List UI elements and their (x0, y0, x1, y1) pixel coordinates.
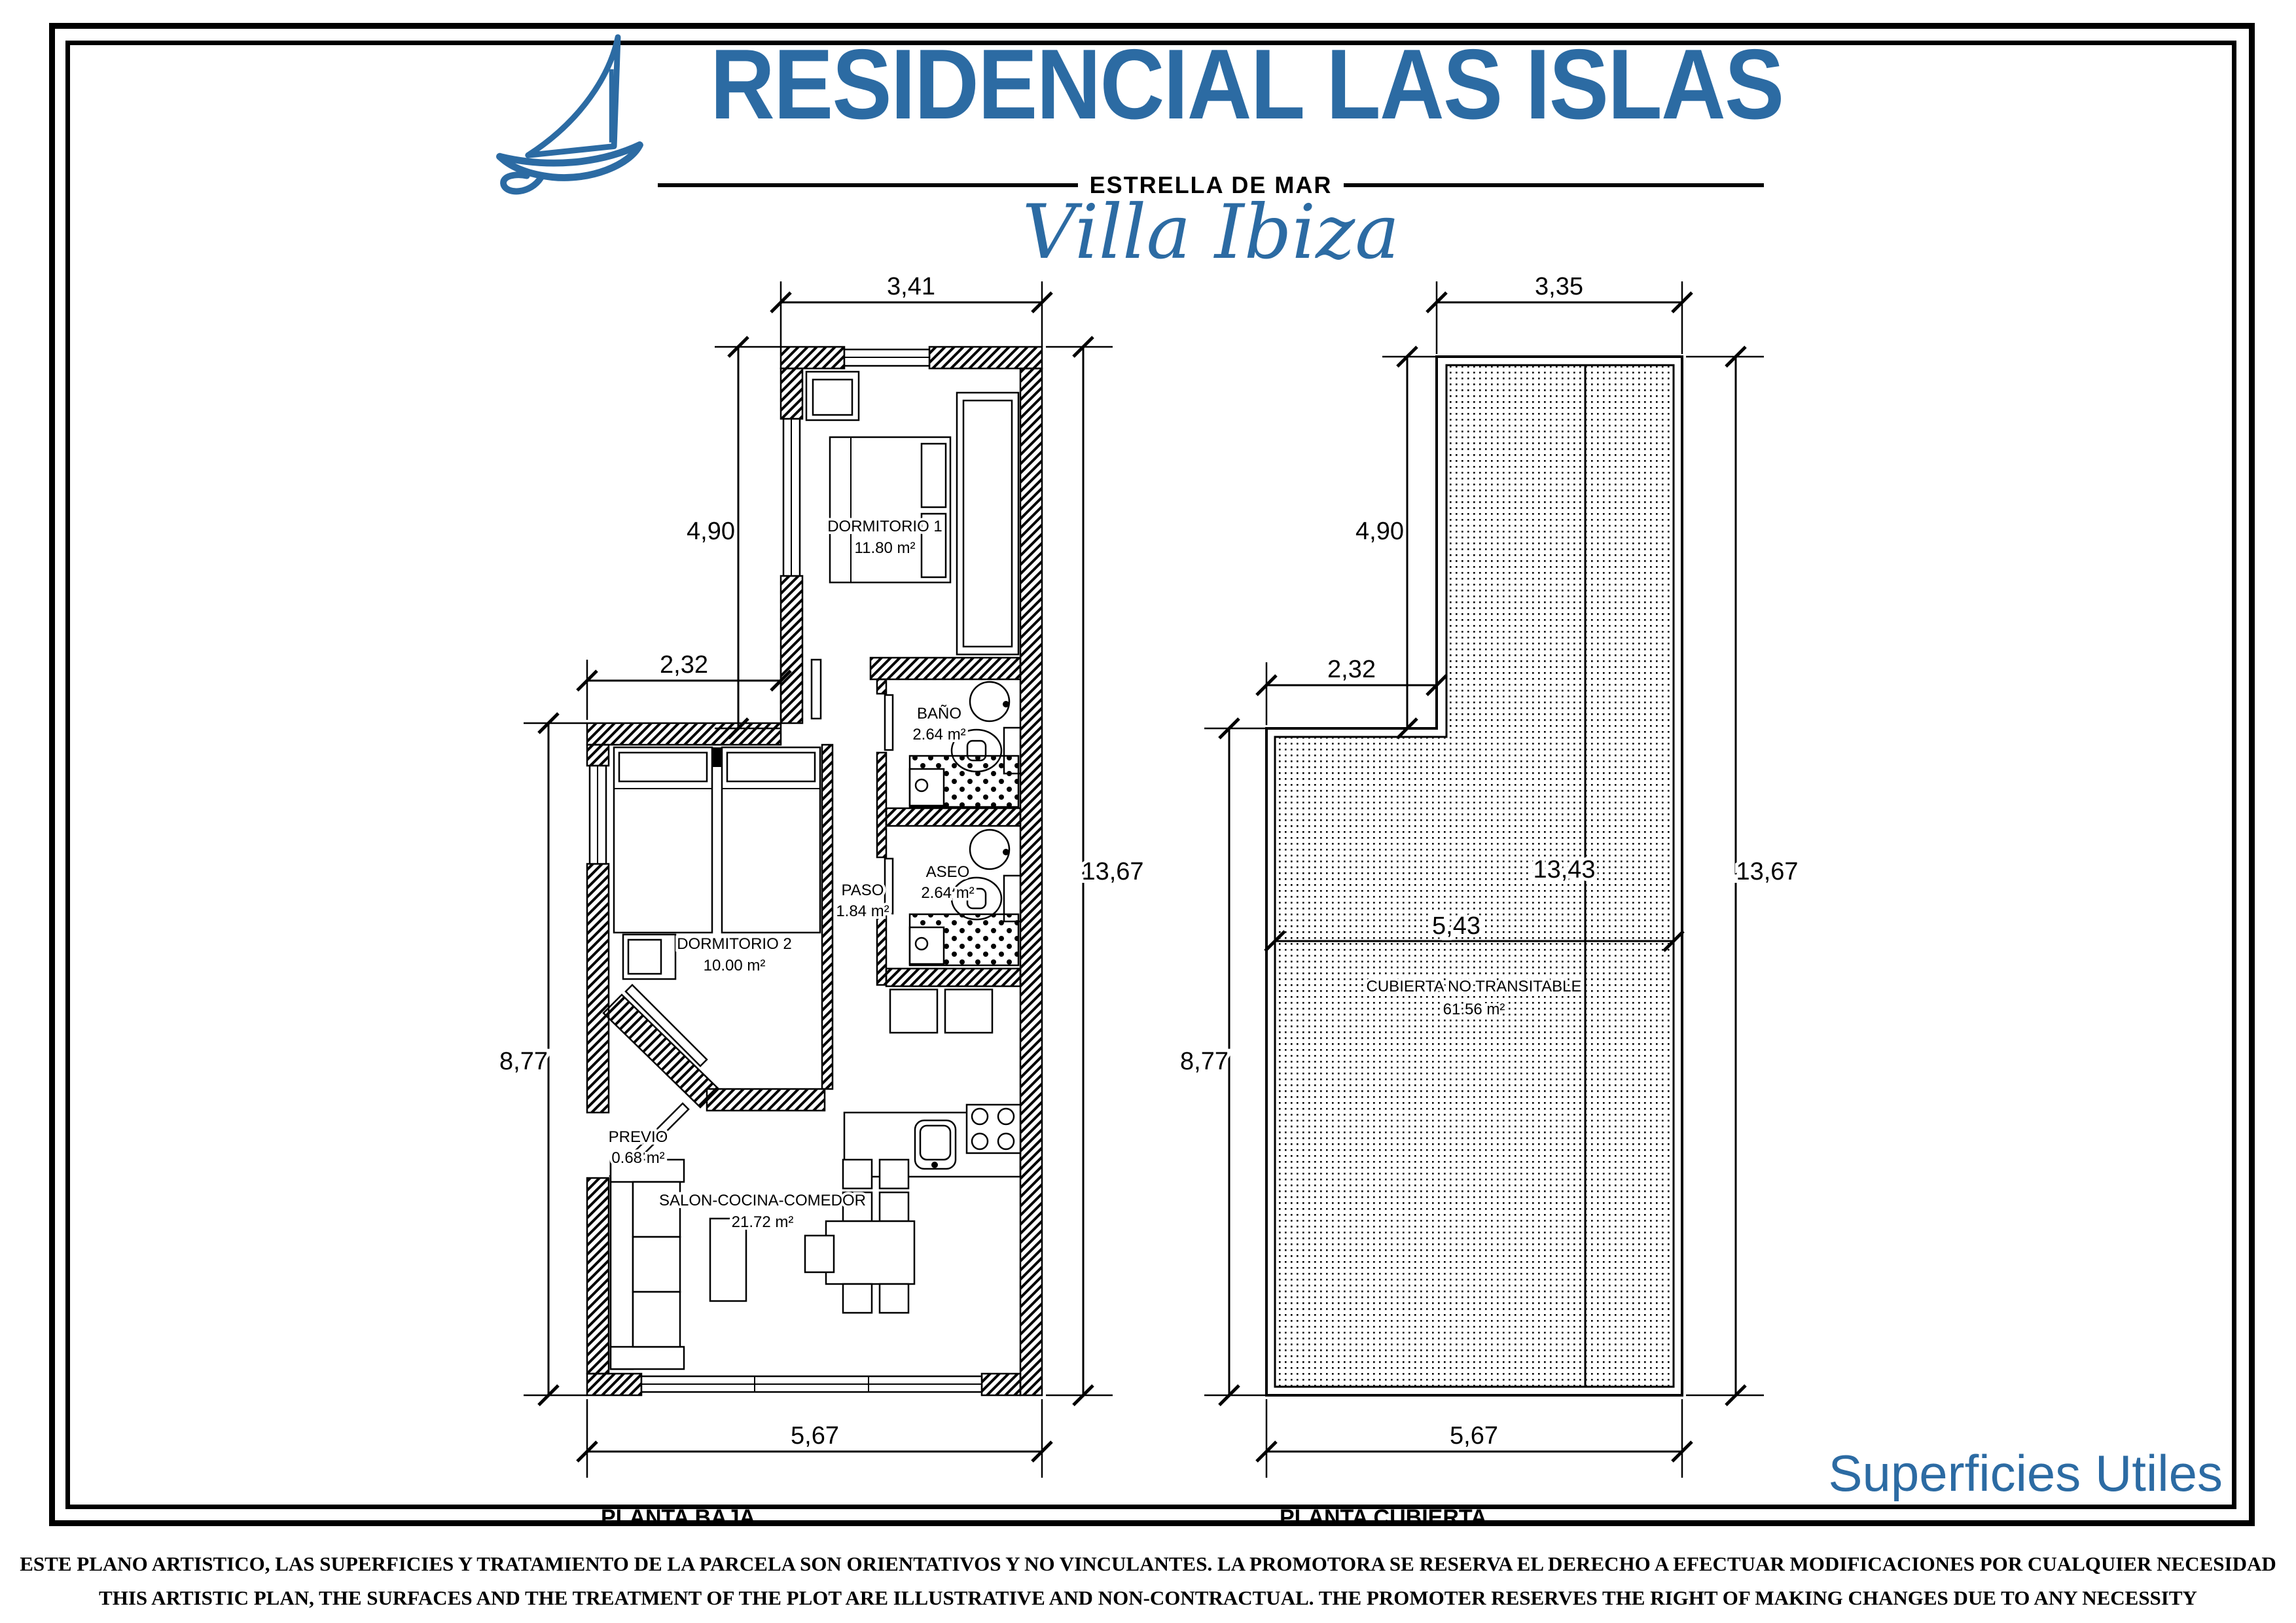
room-label: PREVIO (609, 1128, 668, 1146)
room-label: DORMITORIO 2 (677, 935, 792, 953)
svg-text:2,32: 2,32 (660, 651, 708, 679)
room-area: 1.84 m² (836, 902, 889, 920)
room-area: 61.56 m² (1443, 1001, 1505, 1018)
svg-text:5,67: 5,67 (1450, 1422, 1498, 1450)
dim-lower-left: 8,77 (499, 713, 587, 1405)
dim-mid-left: 2,32 (577, 651, 791, 720)
planta-baja-plan: DORMITORIO 1 11.80 m² BAÑO 2.64 m² ASEO … (499, 273, 1144, 1530)
disclaimer-english: THIS ARTISTIC PLAN, THE SURFACES AND THE… (0, 1586, 2296, 1610)
room-area: 2.64 m² (912, 726, 965, 743)
door-leaf-bano (885, 695, 893, 750)
roof-surface (1275, 365, 1674, 1387)
aseo-fixtures (890, 830, 1020, 1033)
svg-text:3,41: 3,41 (887, 273, 935, 300)
room-label: ASEO (926, 863, 970, 881)
svg-text:8,77: 8,77 (1180, 1048, 1229, 1075)
dim-top: 3,41 (771, 273, 1052, 347)
planta-baja-title: PLANTA BAJA (601, 1505, 755, 1530)
svg-text:4,90: 4,90 (1355, 518, 1404, 545)
room-label: BAÑO (917, 705, 961, 722)
room-label: DORMITORIO 1 (827, 518, 942, 535)
room-area: 11.80 m² (855, 539, 916, 557)
dim-right: 13,67 (1046, 337, 1144, 1405)
svg-text:4,90: 4,90 (687, 518, 735, 545)
svg-text:13,67: 13,67 (1736, 858, 1798, 885)
svg-text:5,43: 5,43 (1432, 912, 1480, 940)
room-label: PASO (842, 882, 884, 899)
room-label: CUBIERTA NO TRANSITABLE (1367, 978, 1582, 995)
svg-text:8,77: 8,77 (499, 1048, 548, 1075)
planta-cubierta-title: PLANTA CUBIERTA (1280, 1505, 1487, 1530)
dim-top: 3,35 (1427, 273, 1692, 354)
svg-text:5,67: 5,67 (791, 1422, 839, 1450)
svg-text:13,67: 13,67 (1081, 858, 1143, 885)
svg-text:3,35: 3,35 (1535, 273, 1583, 300)
bano-fixtures (910, 682, 1020, 807)
floor-plans-drawing: DORMITORIO 1 11.80 m² BAÑO 2.64 m² ASEO … (0, 0, 2296, 1623)
room-label: SALON-COCINA-COMEDOR (659, 1192, 866, 1209)
room-area: 2.64 m² (921, 884, 974, 902)
plan-poster-page: RESIDENCIAL LAS ISLAS ESTRELLA DE MAR Vi… (0, 0, 2296, 1623)
room-area: 21.72 m² (732, 1213, 794, 1231)
svg-text:2,32: 2,32 (1327, 656, 1376, 683)
dim-bottom: 5,67 (577, 1399, 1052, 1478)
dim-roof-ridge-label: 13,43 (1533, 856, 1595, 883)
salon-furniture (611, 1105, 1020, 1369)
dining-table (826, 1221, 914, 1284)
dim-right: 13,67 (1686, 347, 1799, 1405)
room-area: 0.68 m² (611, 1149, 664, 1167)
disclaimer-spanish: ESTE PLANO ARTISTICO, LAS SUPERFICIES Y … (0, 1552, 2296, 1576)
door-leaf-dormitorio1 (812, 660, 821, 719)
dormitorio1-furniture (806, 372, 1018, 654)
superficies-utiles-label: Superficies Utiles (1828, 1444, 2223, 1503)
dim-lower-left: 8,77 (1180, 719, 1266, 1405)
dim-mid-left: 2,32 (1257, 656, 1446, 725)
dim-bottom: 5,67 (1257, 1399, 1692, 1478)
planta-cubierta-plan: 5,43 13,43 CUBIERTA NO TRANSITABLE 61.56… (1180, 273, 1799, 1530)
room-area: 10.00 m² (704, 957, 766, 974)
